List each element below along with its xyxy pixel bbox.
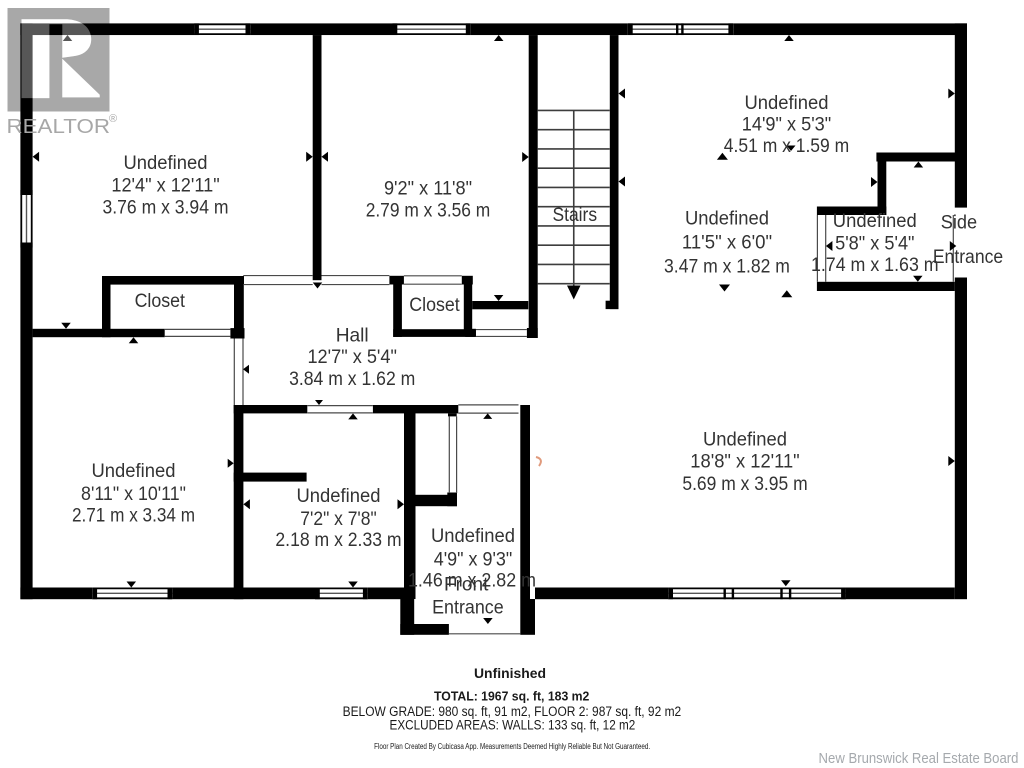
svg-text:Floor Plan Created By Cubicasa: Floor Plan Created By Cubicasa App. Meas… bbox=[374, 742, 650, 751]
svg-text:TOTAL: 1967 sq. ft, 183 m2: TOTAL: 1967 sq. ft, 183 m2 bbox=[434, 689, 589, 704]
svg-text:BELOW GRADE: 980 sq. ft, 91 m2: BELOW GRADE: 980 sq. ft, 91 m2, FLOOR 2:… bbox=[343, 704, 682, 719]
svg-text:Undefined: Undefined bbox=[745, 92, 829, 114]
svg-text:REALTOR: REALTOR bbox=[7, 115, 111, 138]
svg-text:Undefined: Undefined bbox=[124, 152, 208, 174]
svg-text:3.84 m x 1.62 m: 3.84 m x 1.62 m bbox=[289, 368, 415, 390]
svg-text:1.74 m x 1.63 m: 1.74 m x 1.63 m bbox=[811, 254, 939, 276]
svg-text:EXCLUDED AREAS: WALLS: 133 sq.: EXCLUDED AREAS: WALLS: 133 sq. ft, 12 m2 bbox=[390, 718, 636, 733]
svg-text:3.47 m x 1.82 m: 3.47 m x 1.82 m bbox=[664, 256, 790, 278]
svg-text:18'8" x 12'11": 18'8" x 12'11" bbox=[690, 451, 799, 473]
svg-text:Entrance: Entrance bbox=[432, 597, 504, 619]
svg-text:8'11" x 10'11": 8'11" x 10'11" bbox=[81, 483, 186, 505]
svg-text:14'9" x 5'3": 14'9" x 5'3" bbox=[742, 114, 831, 136]
svg-text:Undefined: Undefined bbox=[685, 208, 769, 230]
svg-text:7'2" x 7'8": 7'2" x 7'8" bbox=[300, 508, 376, 530]
svg-text:Hall: Hall bbox=[336, 325, 369, 347]
svg-text:Entrance: Entrance bbox=[933, 246, 1003, 268]
svg-text:New Brunswick Real Estate Boar: New Brunswick Real Estate Board bbox=[819, 751, 1019, 767]
svg-text:2.18 m x 2.33 m: 2.18 m x 2.33 m bbox=[275, 529, 401, 551]
svg-text:5.69 m x 3.95 m: 5.69 m x 3.95 m bbox=[682, 473, 807, 495]
svg-text:Unfinished: Unfinished bbox=[474, 665, 546, 681]
svg-text:4.51 m x 1.59 m: 4.51 m x 1.59 m bbox=[724, 135, 849, 157]
svg-text:Undefined: Undefined bbox=[431, 525, 515, 547]
svg-text:Closet: Closet bbox=[409, 294, 460, 316]
svg-text:Front: Front bbox=[444, 574, 489, 596]
svg-text:11'5" x 6'0": 11'5" x 6'0" bbox=[682, 232, 772, 254]
svg-text:Stairs: Stairs bbox=[553, 204, 598, 226]
svg-text:Undefined: Undefined bbox=[297, 485, 381, 507]
svg-text:®: ® bbox=[109, 113, 117, 125]
svg-text:2.71 m x 3.34 m: 2.71 m x 3.34 m bbox=[72, 505, 195, 527]
svg-text:9'2" x 11'8": 9'2" x 11'8" bbox=[384, 177, 472, 199]
svg-text:12'4" x 12'11": 12'4" x 12'11" bbox=[111, 175, 219, 197]
svg-text:Side: Side bbox=[941, 212, 977, 234]
svg-text:Closet: Closet bbox=[135, 290, 186, 312]
svg-text:12'7" x 5'4": 12'7" x 5'4" bbox=[307, 346, 397, 368]
svg-text:2.79 m x 3.56 m: 2.79 m x 3.56 m bbox=[366, 200, 491, 222]
svg-text:4'9" x 9'3": 4'9" x 9'3" bbox=[434, 548, 513, 570]
svg-text:Undefined: Undefined bbox=[703, 428, 787, 450]
svg-text:Undefined: Undefined bbox=[92, 460, 176, 482]
svg-text:Undefined: Undefined bbox=[833, 210, 917, 232]
svg-text:3.76 m x 3.94 m: 3.76 m x 3.94 m bbox=[103, 196, 229, 218]
svg-text:5'8" x 5'4": 5'8" x 5'4" bbox=[835, 233, 914, 255]
